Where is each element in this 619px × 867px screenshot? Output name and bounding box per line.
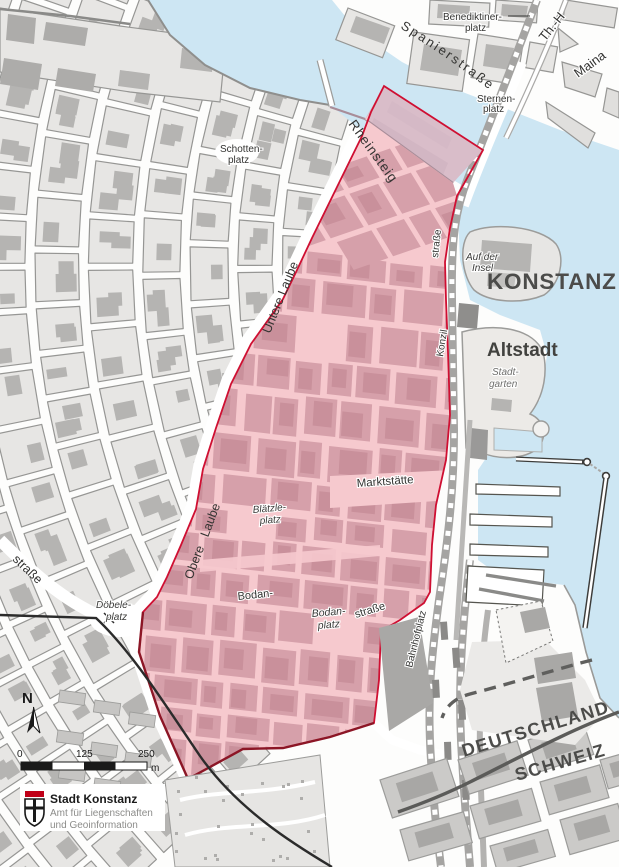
svg-text:250: 250	[138, 749, 155, 760]
svg-text:platz: platz	[228, 155, 249, 166]
svg-text:m: m	[151, 763, 159, 774]
svg-text:platz: platz	[258, 514, 281, 527]
svg-text:KONSTANZ: KONSTANZ	[487, 269, 617, 294]
svg-text:N: N	[22, 690, 33, 707]
svg-text:Altstadt: Altstadt	[487, 340, 558, 361]
svg-text:Insel: Insel	[472, 263, 494, 274]
svg-text:Amt für Liegenschaften: Amt für Liegenschaften	[50, 808, 153, 819]
svg-text:Auf der: Auf der	[465, 252, 499, 263]
svg-text:platz: platz	[465, 23, 486, 34]
svg-text:Döbele-: Döbele-	[96, 600, 132, 611]
svg-text:125: 125	[76, 749, 93, 760]
svg-text:Stadt Konstanz: Stadt Konstanz	[50, 792, 137, 806]
svg-text:platz: platz	[483, 104, 504, 115]
svg-text:und Geoinformation: und Geoinformation	[50, 820, 138, 831]
svg-text:Stadt-: Stadt-	[492, 367, 519, 378]
svg-text:garten: garten	[489, 379, 518, 390]
svg-text:platz: platz	[316, 618, 341, 632]
svg-text:0: 0	[17, 749, 23, 760]
svg-text:Benediktiner-: Benediktiner-	[443, 12, 502, 23]
svg-text:Schotten-: Schotten-	[220, 144, 263, 155]
svg-text:platz: platz	[105, 612, 127, 623]
